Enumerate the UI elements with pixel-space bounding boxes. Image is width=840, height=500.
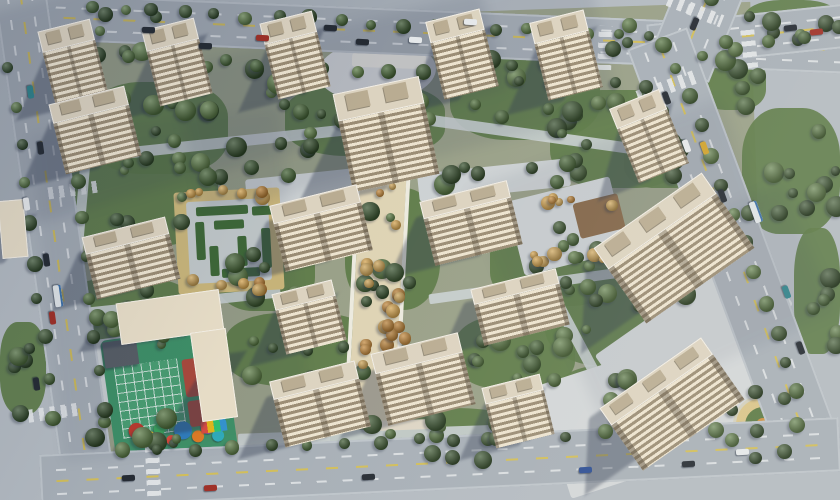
- autumn-tree: [373, 260, 385, 272]
- roof-penthouse: [94, 231, 118, 246]
- autumn-tree: [187, 274, 199, 286]
- street-tree: [208, 8, 218, 18]
- roof-penthouse: [383, 348, 408, 365]
- autumn-tree: [360, 263, 373, 276]
- car: [355, 39, 368, 46]
- street-tree: [374, 436, 388, 450]
- plaza-tree: [749, 452, 762, 465]
- car: [48, 311, 56, 325]
- street-tree: [832, 20, 840, 33]
- autumn-tree: [364, 279, 374, 289]
- tree: [543, 103, 555, 115]
- tree: [199, 168, 217, 186]
- car: [141, 27, 154, 33]
- street-tree: [789, 383, 805, 399]
- tree: [98, 7, 112, 21]
- street-tree: [238, 12, 252, 26]
- street-tree: [44, 373, 55, 384]
- tree: [799, 200, 815, 216]
- autumn-tree: [391, 220, 401, 230]
- aerial-residential-masterplan-rendering: [0, 0, 840, 500]
- tree: [582, 325, 591, 334]
- car: [36, 141, 44, 155]
- car: [26, 85, 34, 99]
- tree: [338, 341, 349, 352]
- car: [203, 485, 216, 492]
- roof-penthouse: [433, 19, 450, 34]
- autumn-tree: [567, 196, 574, 203]
- tree: [526, 162, 538, 174]
- street-tree: [87, 330, 100, 343]
- tree: [548, 373, 562, 387]
- autumn-tree: [237, 188, 248, 199]
- roof-penthouse: [483, 283, 507, 297]
- tree: [132, 427, 153, 448]
- street-tree: [381, 64, 396, 79]
- plaza-tree: [789, 417, 805, 433]
- autumn-tree: [399, 332, 411, 344]
- tree: [275, 137, 287, 149]
- tree: [750, 68, 766, 84]
- street-tree: [352, 66, 364, 78]
- street-tree: [115, 442, 131, 458]
- tree: [226, 137, 246, 157]
- tree: [560, 276, 572, 288]
- tree: [385, 263, 404, 282]
- tree: [246, 247, 260, 261]
- car: [578, 467, 591, 474]
- tree: [110, 213, 123, 226]
- street-tree: [225, 440, 239, 454]
- roof-penthouse: [432, 195, 457, 211]
- tree: [225, 253, 245, 273]
- autumn-tree: [358, 360, 368, 370]
- tree: [85, 428, 105, 448]
- tree: [771, 205, 787, 221]
- roof-penthouse: [319, 366, 344, 382]
- roof-penthouse: [282, 375, 307, 391]
- roof-penthouse: [617, 103, 635, 120]
- roof-penthouse: [45, 29, 62, 44]
- street-tree: [396, 19, 411, 34]
- plaza-tree: [778, 392, 791, 405]
- roof-penthouse: [172, 22, 189, 37]
- roof-penthouse: [516, 378, 533, 391]
- car: [255, 35, 268, 42]
- tree: [259, 262, 270, 273]
- tree: [151, 126, 161, 136]
- street-tree: [746, 265, 760, 279]
- street-tree: [514, 76, 524, 86]
- car: [42, 253, 50, 267]
- tree: [584, 261, 595, 272]
- street-tree: [97, 402, 113, 418]
- tree: [317, 109, 327, 119]
- car: [735, 449, 748, 456]
- street-tree: [695, 118, 709, 132]
- car: [809, 28, 823, 35]
- roof-penthouse: [345, 90, 371, 110]
- tree: [655, 37, 671, 53]
- tree: [591, 96, 606, 111]
- car: [681, 461, 694, 468]
- tree: [550, 175, 564, 189]
- tree: [764, 162, 784, 182]
- car: [198, 43, 211, 49]
- tree: [605, 41, 621, 57]
- tree: [445, 450, 460, 465]
- tree: [242, 366, 261, 385]
- roof-penthouse: [68, 23, 85, 38]
- roof-penthouse: [267, 21, 284, 36]
- car: [121, 475, 134, 482]
- tree: [244, 160, 259, 175]
- roof-penthouse: [307, 284, 325, 297]
- tree: [361, 296, 372, 307]
- tree: [622, 18, 637, 33]
- autumn-tree: [238, 278, 249, 289]
- tree: [459, 162, 470, 173]
- tree: [470, 99, 481, 110]
- street-tree: [750, 424, 764, 438]
- roof-penthouse: [383, 82, 409, 102]
- tree: [831, 166, 840, 175]
- roof-penthouse: [280, 290, 298, 303]
- roof-penthouse: [561, 14, 578, 29]
- tree: [95, 26, 105, 36]
- roof-penthouse: [639, 95, 657, 112]
- tree: [735, 81, 750, 96]
- tree: [385, 429, 395, 439]
- street-tree: [708, 422, 724, 438]
- street-tree: [19, 177, 30, 188]
- street-tree: [83, 293, 95, 305]
- roof-penthouse: [282, 199, 307, 215]
- roof-penthouse: [60, 99, 82, 115]
- street-tree: [189, 444, 202, 457]
- autumn-tree: [252, 284, 265, 297]
- tree: [474, 451, 492, 469]
- tree: [553, 221, 566, 234]
- autumn-tree: [256, 186, 268, 198]
- autumn-tree: [386, 304, 400, 318]
- street-tree: [179, 5, 191, 17]
- street-tree: [17, 139, 28, 150]
- street-tree: [86, 1, 98, 13]
- street-tree: [697, 51, 708, 62]
- tree: [562, 101, 583, 122]
- tree: [553, 337, 573, 357]
- roof-penthouse: [471, 186, 496, 202]
- tree: [580, 279, 596, 295]
- tree: [589, 294, 602, 307]
- street-tree: [45, 411, 60, 426]
- street-tree: [94, 365, 105, 376]
- tree: [376, 285, 389, 298]
- tree: [12, 405, 29, 422]
- roof-penthouse: [537, 20, 554, 35]
- roof-penthouse: [520, 274, 544, 288]
- autumn-tree: [186, 189, 195, 198]
- street-tree: [771, 326, 786, 341]
- tree: [442, 165, 461, 184]
- street-tree: [152, 444, 163, 455]
- tree: [517, 345, 529, 357]
- tree: [24, 343, 35, 354]
- roof-penthouse: [290, 15, 307, 30]
- tree: [826, 196, 840, 217]
- car: [463, 19, 476, 26]
- street-tree: [560, 432, 571, 443]
- tree: [762, 12, 781, 31]
- autumn-tree: [547, 247, 561, 261]
- car: [32, 377, 40, 391]
- car: [22, 197, 30, 211]
- plaza-tree: [725, 433, 739, 447]
- tree: [788, 188, 798, 198]
- car: [323, 25, 336, 32]
- plaza-tree: [748, 385, 763, 400]
- street-tree: [366, 20, 376, 30]
- tree: [827, 337, 840, 354]
- tree: [471, 166, 485, 180]
- tree: [812, 124, 826, 138]
- tree: [172, 434, 181, 443]
- roof-penthouse: [422, 338, 447, 355]
- tree: [807, 302, 820, 315]
- roof-penthouse: [490, 384, 507, 397]
- street-tree: [610, 77, 621, 88]
- tree: [268, 343, 278, 353]
- car: [783, 24, 797, 31]
- autumn-tree: [606, 200, 618, 212]
- street-tree: [447, 434, 460, 447]
- tree: [568, 251, 581, 264]
- car: [361, 474, 374, 481]
- car: [408, 37, 421, 44]
- street-tree: [759, 296, 775, 312]
- roof-penthouse: [130, 222, 154, 237]
- street-tree: [27, 256, 43, 272]
- plaza-tree: [777, 444, 792, 459]
- tree: [168, 134, 181, 147]
- roof-penthouse: [93, 91, 115, 107]
- street-tree: [121, 5, 131, 15]
- tree: [403, 276, 415, 288]
- tree: [175, 100, 196, 121]
- street-tree: [336, 14, 348, 26]
- tree: [820, 268, 840, 289]
- street-tree: [339, 438, 350, 449]
- street-tree: [719, 35, 733, 49]
- roof-penthouse: [320, 190, 345, 206]
- tree: [737, 97, 755, 115]
- street-tree: [250, 60, 262, 72]
- tree: [784, 168, 795, 179]
- street-tree: [490, 24, 502, 36]
- street-tree: [122, 50, 135, 63]
- tree: [173, 214, 190, 231]
